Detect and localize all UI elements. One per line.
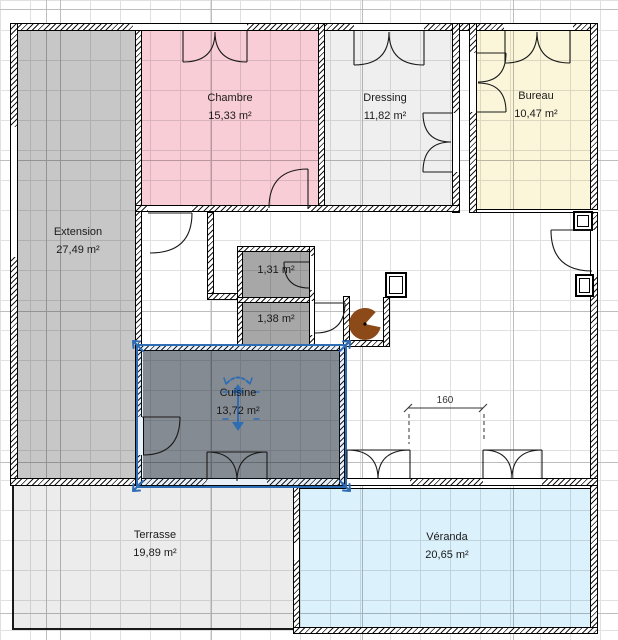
- furniture-round-object[interactable]: [349, 308, 381, 340]
- door-opening-terrace-a[interactable]: [347, 478, 410, 486]
- door-right-wall[interactable]: [551, 230, 592, 271]
- door-opening-bureau-top[interactable]: [504, 23, 573, 31]
- wall-terrasse-veranda[interactable]: [293, 486, 300, 634]
- door-opening-chambre-top[interactable]: [183, 23, 247, 31]
- door-opening-dressing-top[interactable]: [354, 23, 424, 31]
- room-wc-small-2[interactable]: [243, 303, 309, 345]
- wall-veranda-bottom[interactable]: [293, 627, 598, 634]
- room-extension[interactable]: [18, 31, 135, 478]
- dimension-annotation[interactable]: [404, 404, 487, 444]
- wall-bureau-left[interactable]: [469, 23, 477, 213]
- door-opening-wc2[interactable]: [309, 301, 315, 335]
- floor-plan-canvas[interactable]: 160 Chambre 15,33 m² Dressing 11,82 m²: [0, 0, 618, 640]
- wall-wc-middle[interactable]: [237, 297, 315, 303]
- window-left-wall[interactable]: [10, 127, 18, 257]
- wall-box-center[interactable]: [385, 272, 407, 298]
- wall-chambre-dressing[interactable]: [318, 23, 325, 212]
- room-terrasse[interactable]: [12, 486, 297, 630]
- door-opening-bureau-left[interactable]: [469, 53, 477, 112]
- room-wc-small-1[interactable]: [243, 252, 309, 297]
- room-veranda[interactable]: [300, 488, 590, 627]
- double-door-veranda-a[interactable]: [347, 450, 410, 479]
- door-opening-wc1[interactable]: [309, 256, 315, 290]
- wall-box-right-lower[interactable]: [575, 274, 594, 297]
- room-bureau[interactable]: [477, 31, 590, 209]
- door-opening-dressing-right[interactable]: [452, 113, 460, 172]
- dimension-label: 160: [437, 395, 454, 406]
- wall-wc-top[interactable]: [237, 246, 315, 252]
- wall-hall-stub-v[interactable]: [207, 212, 214, 300]
- wall-right[interactable]: [590, 23, 598, 634]
- door-hallway[interactable]: [148, 213, 192, 253]
- room-dressing[interactable]: [325, 31, 452, 205]
- window-terrasse-veranda[interactable]: [293, 543, 300, 560]
- door-opening-terrace-b[interactable]: [483, 478, 542, 486]
- selection-outline-cuisine[interactable]: [136, 344, 347, 488]
- wall-wc-left[interactable]: [237, 246, 243, 345]
- door-opening-right-wall[interactable]: [590, 230, 598, 276]
- door-opening-hallway[interactable]: [148, 205, 192, 212]
- double-door-veranda-b[interactable]: [483, 450, 542, 479]
- door-wc2[interactable]: [315, 303, 345, 333]
- wall-wc2-right[interactable]: [383, 297, 390, 347]
- door-opening-chambre-bottom[interactable]: [268, 205, 308, 212]
- room-chambre[interactable]: [142, 31, 318, 205]
- wall-box-right-upper[interactable]: [573, 211, 593, 231]
- window-top-left[interactable]: [133, 23, 183, 31]
